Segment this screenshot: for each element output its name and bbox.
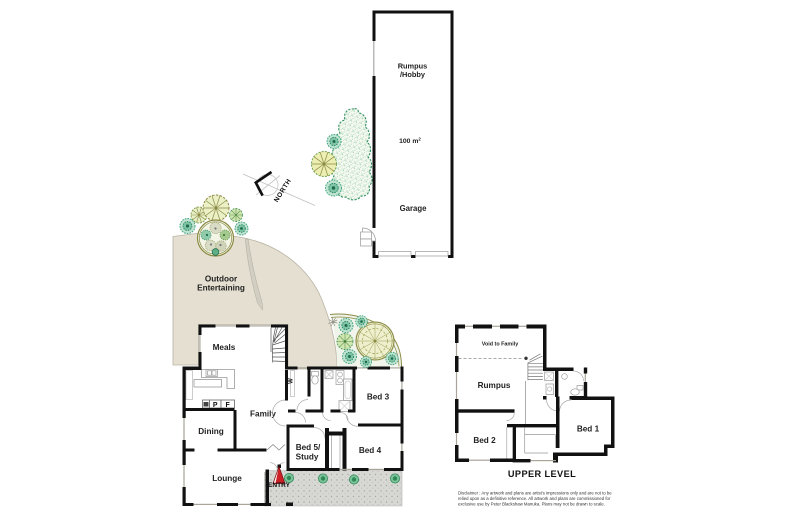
svg-text:100 m2: 100 m2 [399, 137, 421, 146]
svg-text:Lounge: Lounge [212, 474, 242, 483]
svg-text:Rumpus: Rumpus [478, 381, 511, 390]
svg-text:Bed 4: Bed 4 [359, 446, 382, 455]
svg-text:Garage: Garage [400, 204, 428, 213]
svg-text:ENTRY: ENTRY [268, 482, 291, 489]
svg-text:exclusive use by Peter Blacksh: exclusive use by Peter Blackshaw Manuka.… [458, 502, 605, 507]
svg-text:relied upon as a definitive re: relied upon as a definitive reference. A… [458, 496, 611, 501]
svg-text:Outdoor: Outdoor [205, 275, 238, 284]
svg-text:W: W [289, 378, 295, 384]
svg-text:Meals: Meals [213, 343, 236, 352]
svg-text:Bed 1: Bed 1 [577, 425, 600, 434]
svg-text:Entertaining: Entertaining [197, 284, 245, 293]
svg-text:Bed 3: Bed 3 [367, 393, 390, 402]
svg-text:Bed 5/: Bed 5/ [296, 443, 321, 452]
svg-text:Void to Family: Void to Family [482, 342, 518, 348]
svg-text:/Hobby: /Hobby [400, 70, 426, 79]
svg-text:Bed 2: Bed 2 [473, 436, 496, 445]
svg-text:F: F [226, 402, 231, 409]
svg-text:UPPER LEVEL: UPPER LEVEL [508, 469, 576, 479]
svg-text:Dining: Dining [198, 427, 223, 436]
svg-text:Study: Study [296, 453, 319, 462]
svg-text:P: P [213, 402, 218, 409]
svg-text:Disclaimer : Any artwork and p: Disclaimer : Any artwork and plans are a… [458, 491, 612, 496]
